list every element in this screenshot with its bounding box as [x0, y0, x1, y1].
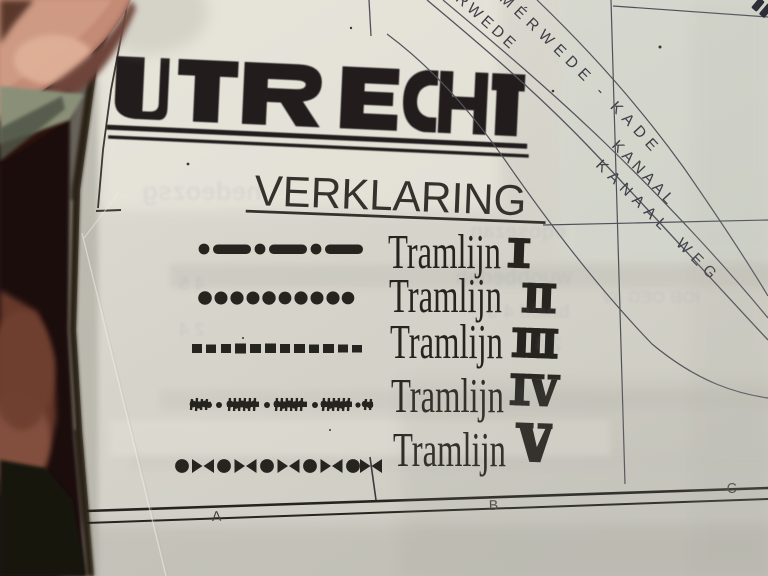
svg-text:nedeozsg: nedeozsg — [142, 176, 262, 206]
svg-text:2 4: 2 4 — [178, 320, 205, 341]
svg-text:A: A — [212, 508, 223, 524]
svg-text:bnaid 4 5: bnaid 4 5 — [487, 302, 570, 323]
svg-text:IOB OEG IIV: IOB OEG IIV — [601, 288, 700, 307]
svg-text:Tramlijn: Tramlijn — [390, 314, 503, 369]
svg-text:wuobbedah: wuobbedah — [455, 266, 573, 289]
svg-text:eqosezan: eqosezan — [470, 220, 566, 243]
svg-text:2 4: 2 4 — [535, 334, 562, 355]
svg-text:4 5: 4 5 — [178, 274, 205, 295]
